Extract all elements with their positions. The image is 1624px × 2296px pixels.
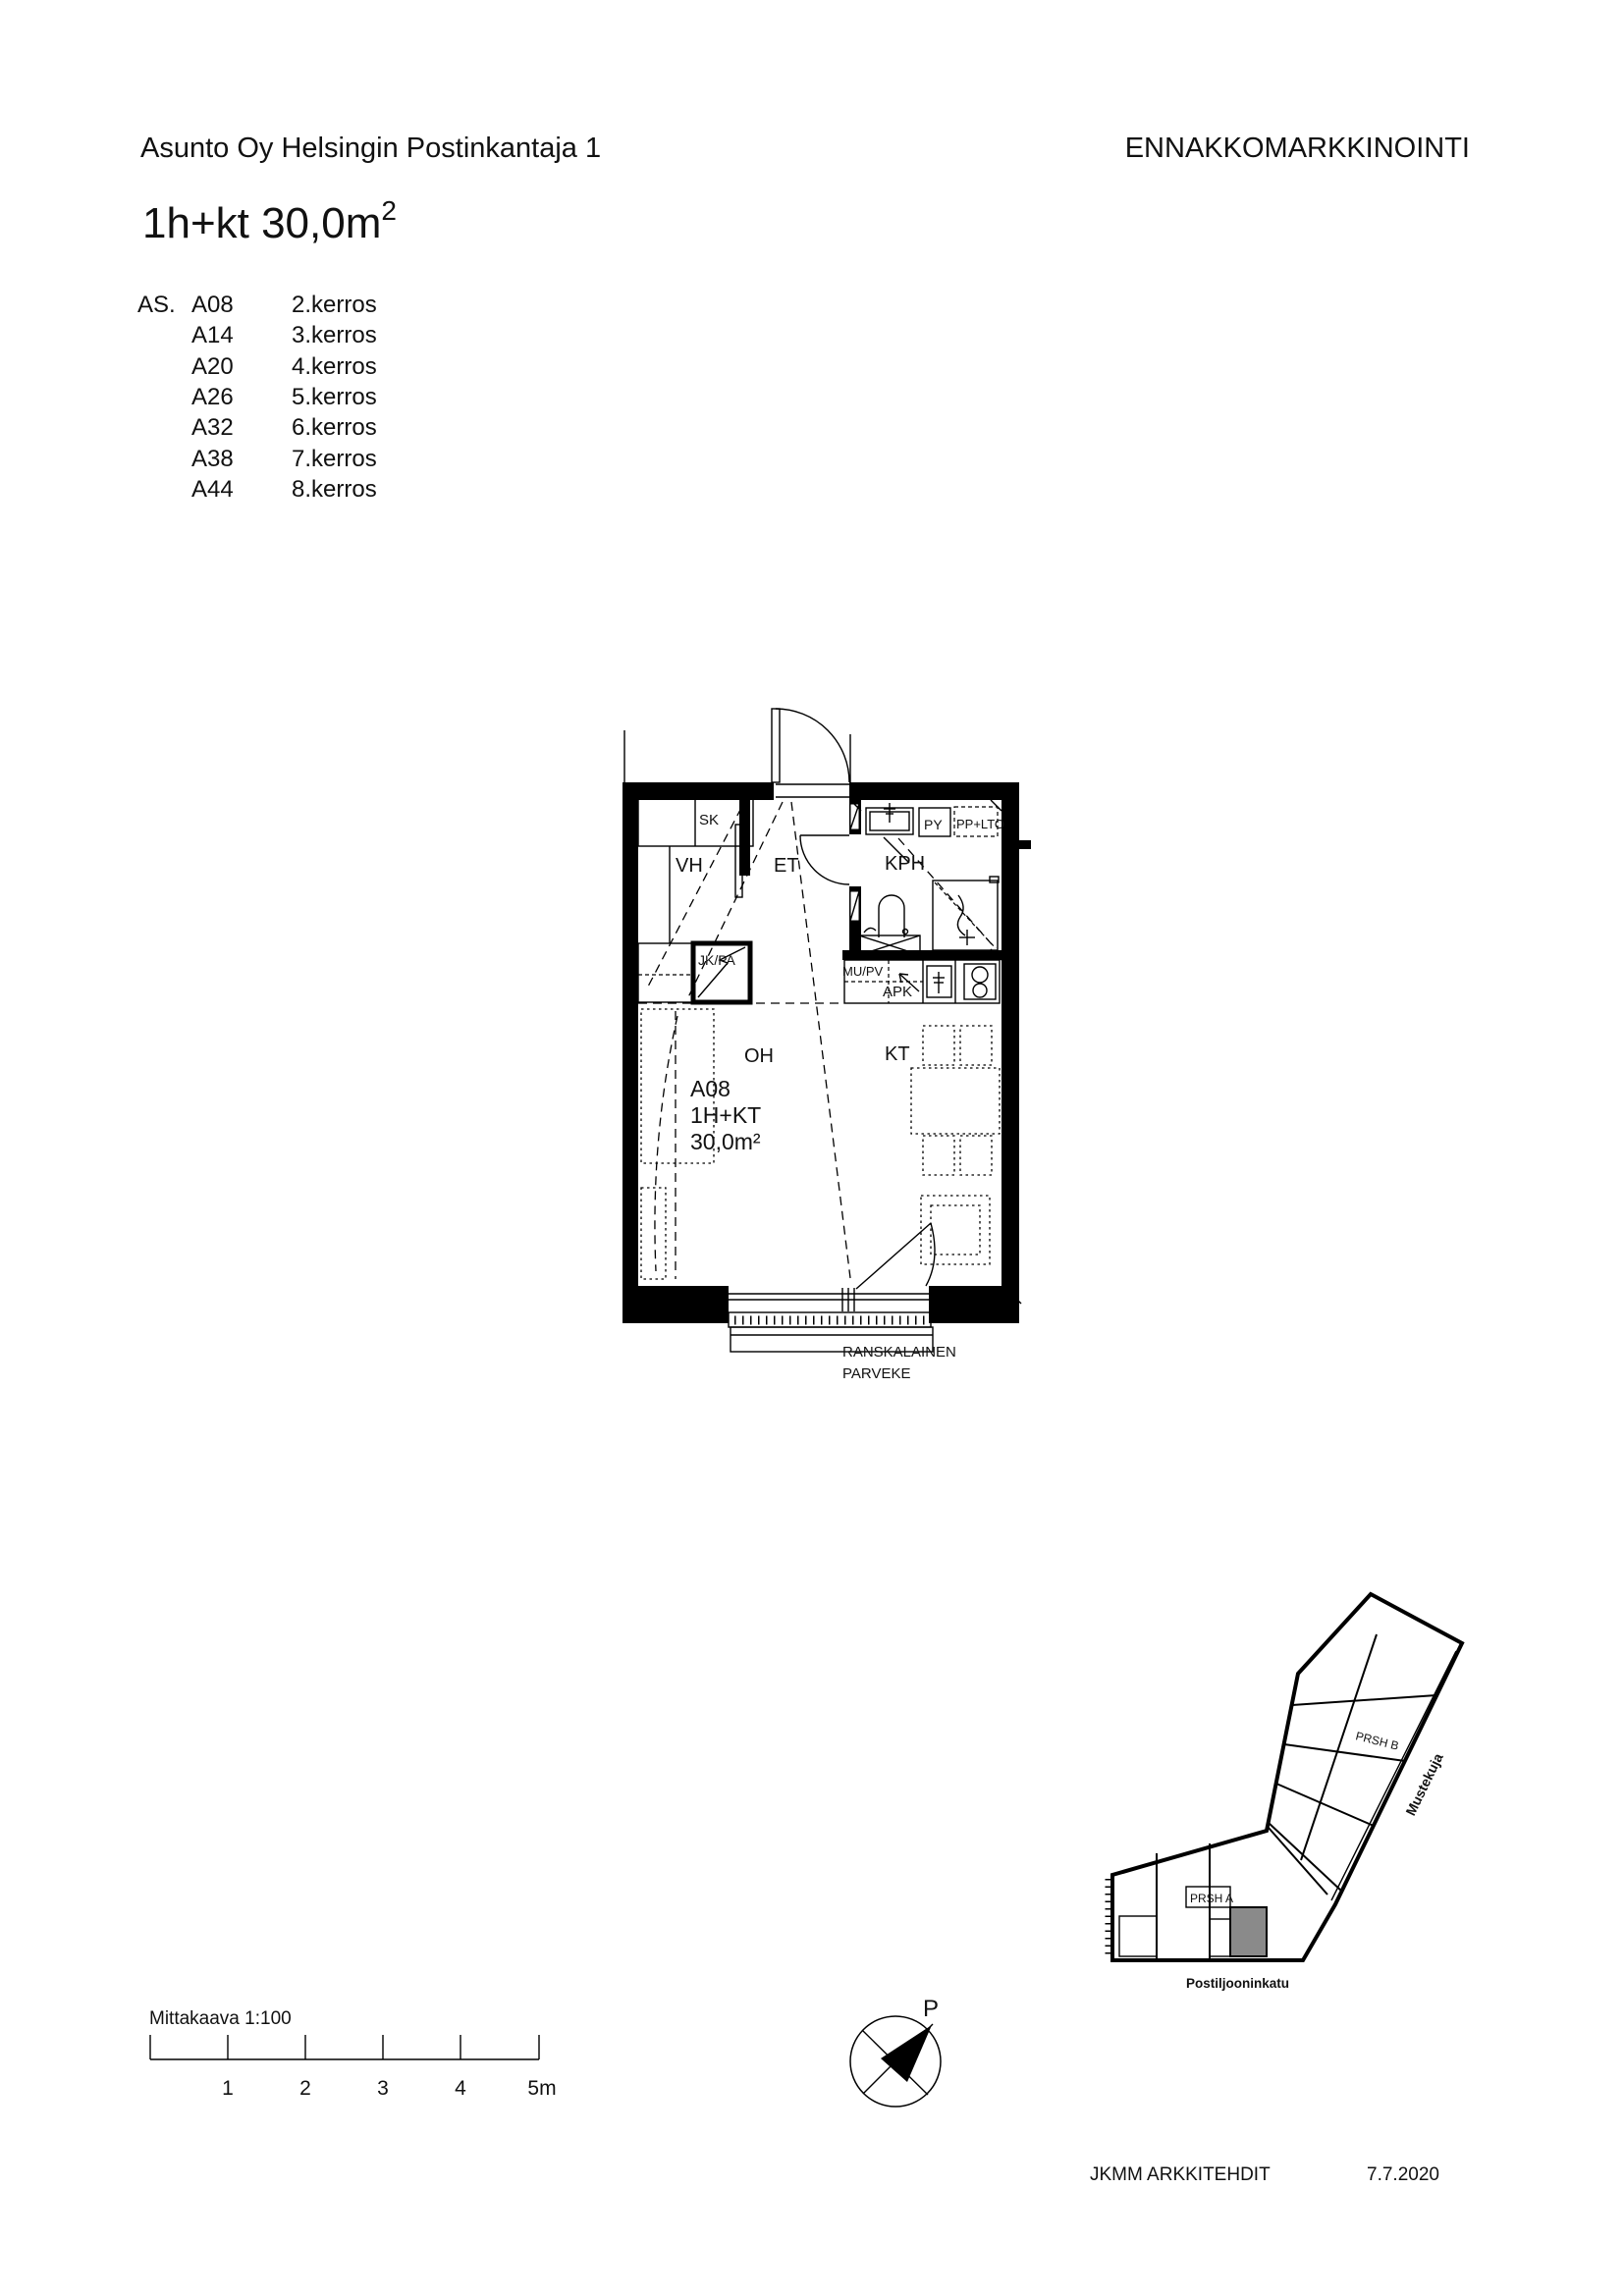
french-balcony	[729, 1223, 935, 1352]
apartment-floor: 7.kerros	[292, 446, 377, 472]
fixture-label-jk-pa: JK/PA	[698, 952, 736, 968]
apartment-floor: 2.kerros	[292, 292, 377, 318]
kitchen-sink	[927, 966, 951, 997]
scale-tick: 4	[455, 2077, 466, 2100]
room-label-kph: KPH	[885, 853, 925, 875]
floor-plan: SK VH ET KPH PY PP+LTO JK/PA MU/PV APK O…	[623, 709, 1031, 1382]
apartment-code: A26	[191, 384, 234, 410]
highlighted-unit	[1230, 1907, 1267, 1956]
bathroom-door	[800, 835, 849, 884]
compass: P	[850, 1996, 941, 2107]
fixture-label-py: PY	[924, 817, 943, 832]
apartment-code: A20	[191, 353, 234, 380]
north-label: P	[923, 1996, 939, 2022]
project-title: Asunto Oy Helsingin Postinkantaja 1	[140, 133, 601, 164]
entry-door	[772, 709, 849, 797]
corner-ticks	[850, 800, 1021, 1304]
apartment-type-title: 1h+kt 30,0m2	[142, 195, 397, 247]
bathroom-door-arc	[800, 835, 849, 884]
room-label-vh: VH	[676, 855, 703, 877]
site-label-building-b: PRSH B	[1354, 1729, 1400, 1752]
architect-name: JKMM ARKKITEHDIT	[1090, 2164, 1271, 2185]
balcony-label-line1: RANSKALAINEN	[842, 1344, 956, 1361]
balcony-door-leaf	[856, 1223, 931, 1289]
scale-label: Mittakaava 1:100	[149, 2008, 292, 2029]
drawing-date: 7.7.2020	[1367, 2164, 1439, 2185]
toilet	[864, 895, 908, 937]
unit-type: 1H+KT	[690, 1102, 761, 1128]
room-label-sk: SK	[699, 812, 719, 828]
apartment-code: A38	[191, 446, 234, 472]
balcony-label-line2: PARVEKE	[842, 1365, 910, 1382]
room-label-et: ET	[774, 855, 799, 877]
apartment-floor: 4.kerros	[292, 353, 377, 380]
fixture-label-pp-lto: PP+LTO	[956, 817, 1004, 831]
street-label-south: Postiljooninkatu	[1186, 1976, 1289, 1991]
site-plan: PRSH B PRSH A Mustekuja Postiljooninkatu	[1109, 1594, 1462, 1991]
chair	[960, 1136, 992, 1175]
room-label-oh: OH	[744, 1045, 774, 1067]
stove	[964, 964, 996, 999]
apartment-code: A14	[191, 322, 234, 348]
bathroom-sink	[866, 803, 913, 834]
scale-tick: 3	[377, 2077, 389, 2100]
apartment-code: A08	[191, 292, 234, 318]
apartment-code: A32	[191, 414, 234, 441]
fixture-label-mu-pv: MU/PV	[842, 964, 884, 979]
unit-code: A08	[690, 1076, 731, 1101]
site-outline	[1112, 1594, 1462, 1960]
armchair-seat	[931, 1205, 980, 1255]
dining-table	[911, 1068, 1000, 1134]
fixture-label-apk: APK	[883, 984, 912, 1000]
marketing-status: ENNAKKOMARKKINOINTI	[1125, 133, 1470, 164]
apartment-floor: 6.kerros	[292, 414, 377, 441]
apartment-type-sup: 2	[381, 195, 397, 226]
apartment-floor: 8.kerros	[292, 476, 377, 503]
apartment-floor: 5.kerros	[292, 384, 377, 410]
entry-door-arc	[776, 709, 849, 782]
unit-area: 30,0m²	[690, 1129, 761, 1154]
side-table	[641, 1188, 666, 1279]
room-label-kt: KT	[885, 1043, 910, 1065]
scale-tick: 5m	[527, 2077, 556, 2100]
apartment-floor: 3.kerros	[292, 322, 377, 348]
north-arrow	[881, 2025, 932, 2082]
chair	[960, 1026, 992, 1065]
scale-tick: 1	[222, 2077, 234, 2100]
chair	[923, 1136, 954, 1175]
apartment-list: AS. A08 2.kerros A14 3.kerros A20 4.kerr…	[137, 292, 377, 503]
apartment-code: A44	[191, 476, 234, 503]
sheet-canvas: Asunto Oy Helsingin Postinkantaja 1 ENNA…	[0, 0, 1624, 2296]
scale-tick: 2	[299, 2077, 311, 2100]
apartment-type-main: 1h+kt 30,0m	[142, 199, 381, 247]
street-label-east: Mustekuja	[1402, 1750, 1445, 1818]
apartment-list-label: AS.	[137, 292, 176, 318]
drawing-sheet: Asunto Oy Helsingin Postinkantaja 1 ENNA…	[0, 0, 1624, 2296]
chair	[923, 1026, 954, 1065]
site-label-building-a: PRSH A	[1190, 1892, 1233, 1905]
scale-bar: Mittakaava 1:100 1 2 3 4 5m	[149, 2008, 557, 2100]
